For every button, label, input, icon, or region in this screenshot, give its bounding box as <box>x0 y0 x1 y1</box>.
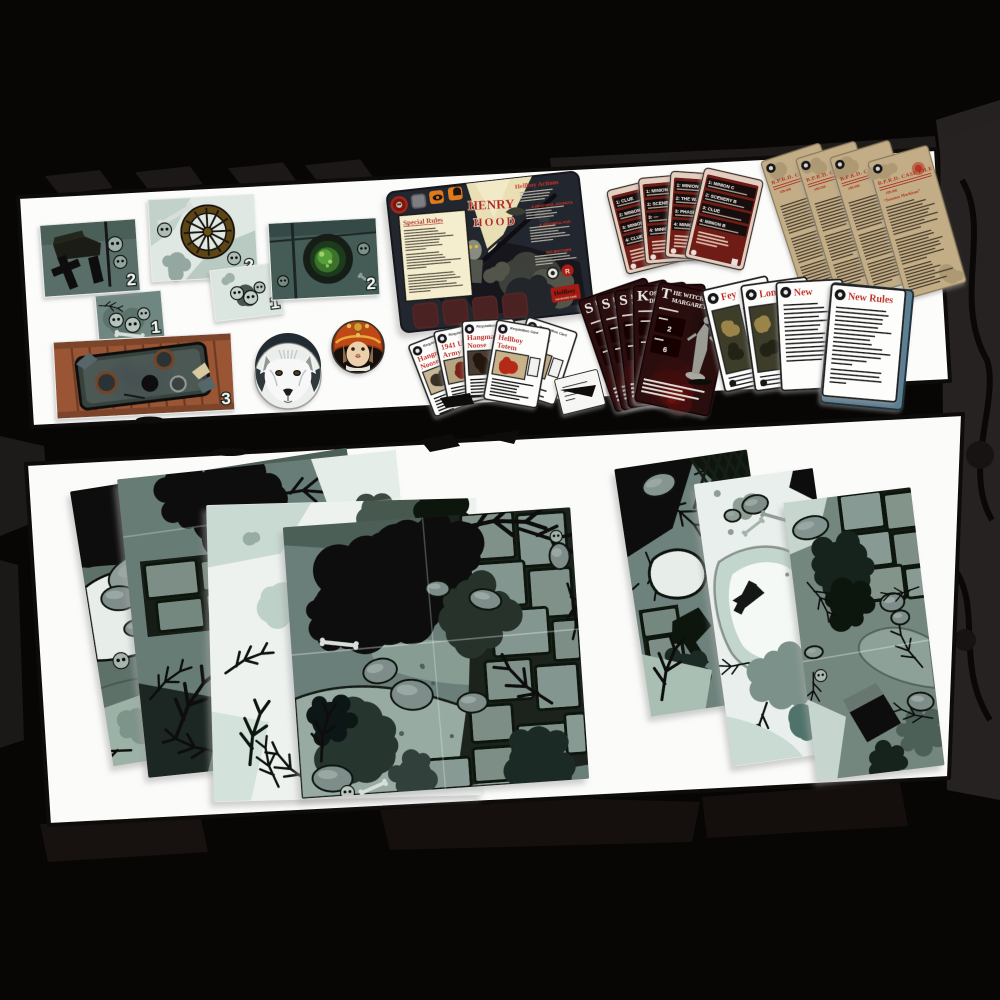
svg-text:1: 1 <box>150 317 161 337</box>
svg-text:2: 2 <box>366 274 376 293</box>
svg-text:2: 2 <box>126 270 137 290</box>
svg-text:K: K <box>637 288 649 304</box>
svg-text:New: New <box>794 287 814 299</box>
svg-text:3: 3 <box>221 389 231 408</box>
svg-text:Noose: Noose <box>467 340 487 350</box>
svg-text:3: —: 3: — <box>648 214 659 220</box>
svg-text:HOOD: HOOD <box>473 216 517 230</box>
